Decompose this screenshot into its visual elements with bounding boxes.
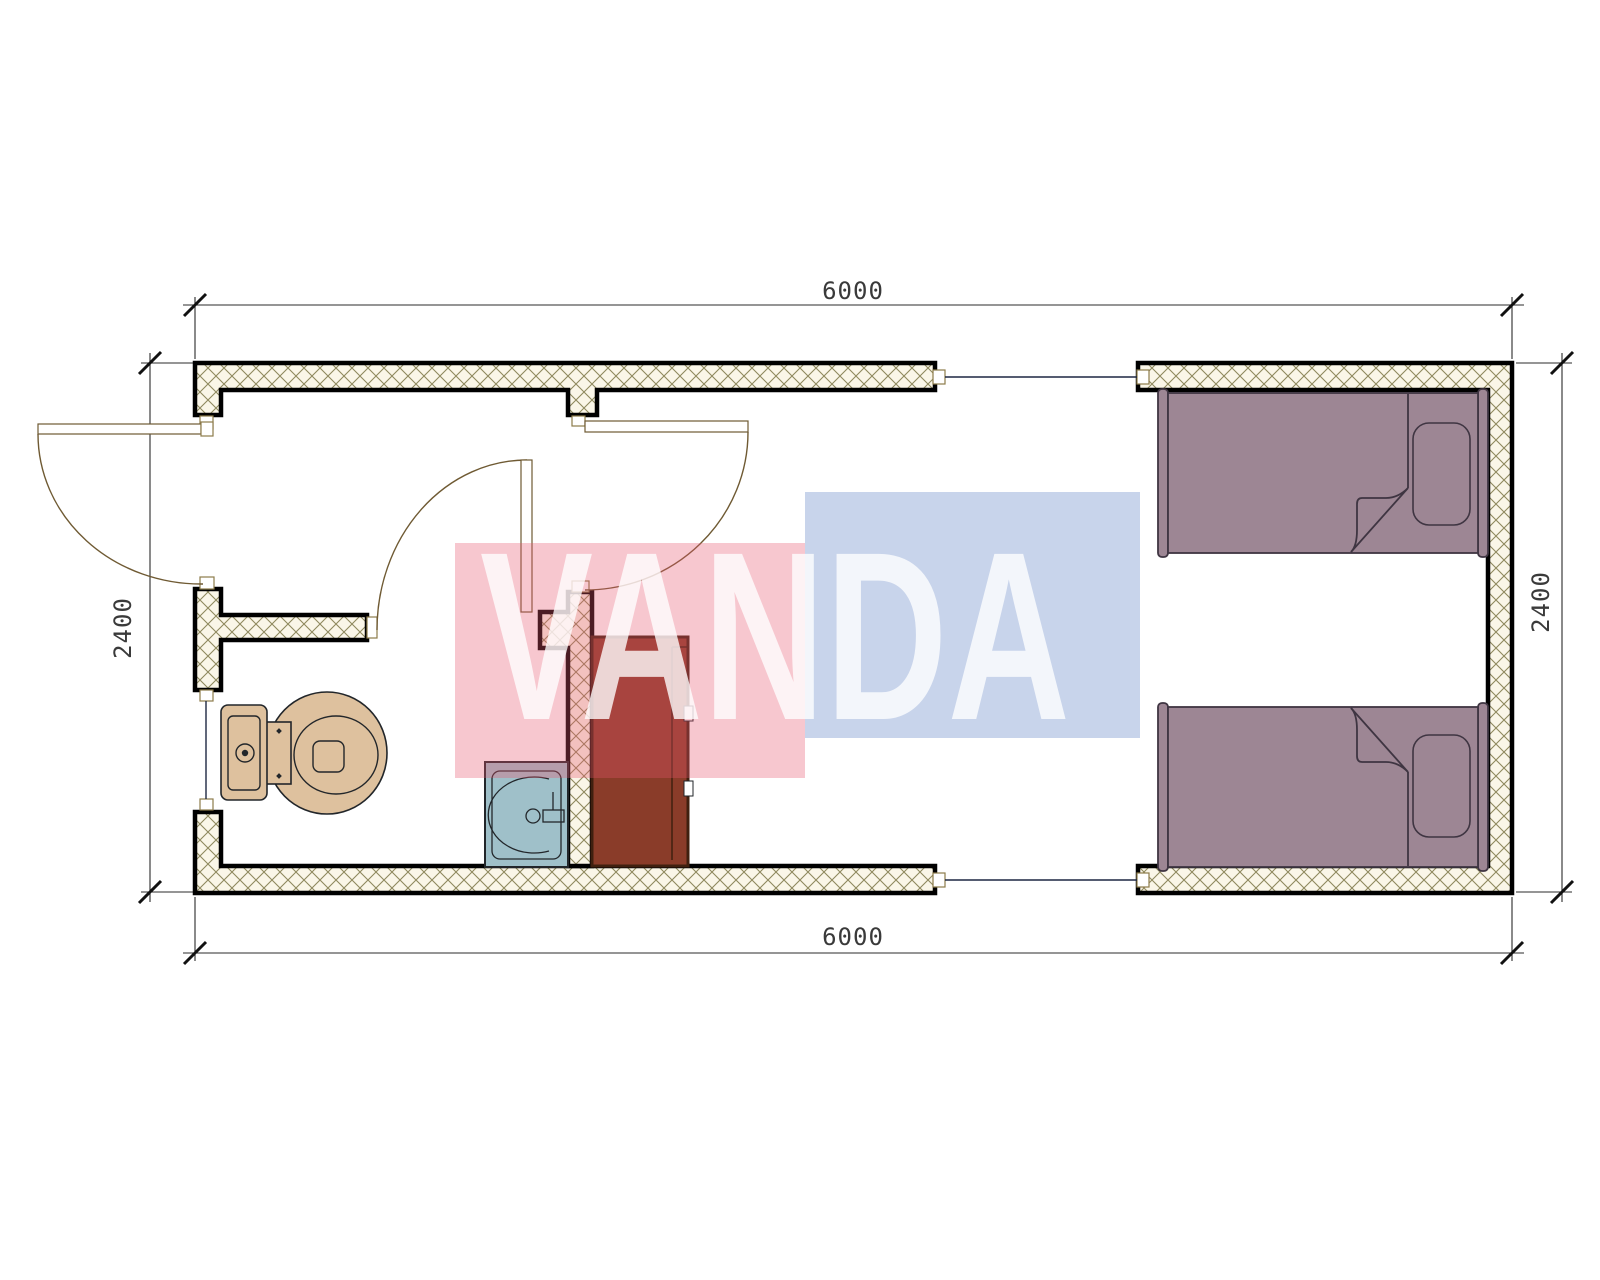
watermark: VANDA — [455, 492, 1140, 778]
wall-cap — [933, 873, 945, 887]
wall-left-middle-with-partition-stub — [195, 589, 367, 690]
wall-cap — [200, 799, 213, 810]
wall-cap — [200, 690, 213, 701]
wall-cap — [367, 617, 377, 638]
watermark-text: VANDA — [480, 502, 1070, 770]
door-leaf — [38, 424, 201, 434]
door-frame-cap — [201, 422, 213, 436]
dimension-top: 6000 — [183, 277, 1524, 359]
floor-plan-svg: 6000 6000 2400 2400 — [0, 0, 1600, 1280]
wall-cap — [1137, 873, 1149, 887]
door-leaf — [585, 421, 748, 432]
wall-cap — [933, 370, 945, 384]
dimension-bottom: 6000 — [183, 897, 1524, 964]
floor-plan-canvas: 6000 6000 2400 2400 — [0, 0, 1600, 1280]
bed-footboard — [1478, 703, 1488, 871]
door-swing-arc — [38, 434, 203, 584]
dimension-label-top: 6000 — [822, 277, 884, 305]
toilet — [221, 692, 387, 814]
bed-1 — [1158, 389, 1488, 557]
dimension-label-left: 2400 — [109, 597, 137, 659]
bed-footboard — [1478, 389, 1488, 557]
dimension-left: 2400 — [109, 352, 193, 903]
entrance-door — [38, 422, 213, 584]
dimension-label-bottom: 6000 — [822, 923, 884, 951]
bed-2 — [1158, 703, 1488, 871]
wall-top-with-door-stub — [195, 363, 935, 415]
toilet-flush-button-center — [242, 750, 248, 756]
wall-cap — [1137, 370, 1149, 384]
bed-pillow — [1413, 423, 1470, 525]
dimension-label-right: 2400 — [1527, 571, 1555, 633]
dimension-right: 2400 — [1516, 352, 1573, 903]
bed-headboard — [1158, 703, 1168, 871]
bed-headboard — [1158, 389, 1168, 557]
bed-pillow — [1413, 735, 1470, 837]
cabinet-hinge — [684, 781, 693, 796]
wall-cap — [572, 416, 585, 426]
wall-cap — [200, 577, 214, 589]
